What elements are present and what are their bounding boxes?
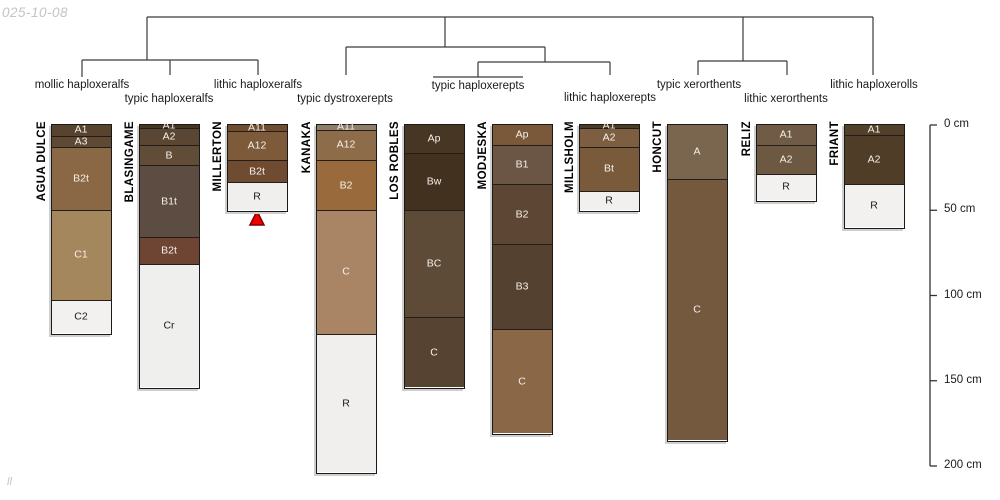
horizon-label: R	[317, 398, 376, 409]
soil-column-honcut: AC	[667, 124, 728, 442]
horizon-c1: C1	[52, 210, 111, 300]
axis-tick-label: 100 cm	[944, 289, 982, 301]
column-name-agua-dulce: AGUA DULCE	[36, 121, 48, 201]
horizon-r: R	[580, 191, 639, 210]
horizon-c: C	[668, 179, 727, 440]
axis-tick-label: 150 cm	[944, 374, 982, 386]
soil-column-friant: A1A2R	[844, 124, 905, 229]
horizon-label: A	[668, 146, 727, 157]
horizon-a12: A12	[228, 131, 287, 160]
horizon-b2: B2	[317, 160, 376, 209]
horizon-label: A1	[52, 125, 111, 136]
horizon-label: B2	[493, 209, 552, 220]
column-name-modjeska: MODJESKA	[477, 121, 489, 189]
horizon-label: B1	[493, 160, 552, 171]
subgroup-label-typic-xerorthents: typic xerorthents	[657, 79, 741, 91]
horizon-label: A1	[580, 121, 639, 132]
horizon-label: B	[140, 150, 199, 161]
watermark-bottom-left: ll	[7, 476, 12, 488]
horizon-label: B3	[493, 281, 552, 292]
horizon-label: A11	[228, 122, 287, 133]
horizon-label: C	[668, 304, 727, 315]
horizon-label: C	[317, 267, 376, 278]
horizon-label: A2	[845, 154, 904, 165]
subgroup-label-typic-haploxerepts: typic haploxerepts	[432, 80, 525, 92]
column-name-friant: FRIANT	[829, 121, 841, 166]
column-name-honcut: HONCUT	[652, 121, 664, 173]
red-triangle-marker	[250, 211, 264, 225]
horizon-label: R	[580, 195, 639, 206]
axis-tick-label: 0 cm	[944, 118, 969, 130]
horizon-r: R	[228, 182, 287, 209]
horizon-ap: Ap	[493, 125, 552, 145]
horizon-label: A2	[580, 132, 639, 143]
horizon-r: R	[757, 174, 816, 200]
soil-column-millerton: A11A12B2tR	[227, 124, 288, 212]
column-name-millsholm: MILLSHOLM	[564, 121, 576, 193]
subgroup-label-mollic-haploxeralfs: mollic haploxeralfs	[35, 79, 130, 91]
horizon-label: R	[757, 182, 816, 193]
horizon-bc: BC	[405, 210, 464, 317]
horizon-label: C2	[52, 311, 111, 322]
horizon-a1: A1	[580, 125, 639, 128]
horizon-label: A1	[757, 129, 816, 140]
horizon-cr: Cr	[140, 264, 199, 387]
horizon-b2t: B2t	[228, 160, 287, 182]
horizon-r: R	[317, 334, 376, 472]
axis-tick-label: 50 cm	[944, 203, 975, 215]
horizon-label: B1t	[140, 196, 199, 207]
horizon-b2t: B2t	[52, 147, 111, 210]
horizon-a3: A3	[52, 136, 111, 146]
horizon-label: A12	[228, 141, 287, 152]
horizon-label: A12	[317, 140, 376, 151]
subgroup-label-lithic-haploxeralfs: lithic haploxeralfs	[214, 79, 302, 91]
subgroup-label-typic-dystroxerepts: typic dystroxerepts	[297, 93, 393, 105]
horizon-label: B2t	[52, 173, 111, 184]
horizon-b2t: B2t	[140, 237, 199, 264]
horizon-label: B2t	[140, 246, 199, 257]
soil-column-los-robles: ApBwBCC	[404, 124, 465, 390]
horizon-a2: A2	[140, 128, 199, 145]
horizon-label: A2	[757, 154, 816, 165]
soil-column-kanaka: A11A12B2CR	[316, 124, 377, 475]
horizon-bt: Bt	[580, 147, 639, 191]
subgroup-label-lithic-haploxerolls: lithic haploxerolls	[830, 79, 918, 91]
subgroup-label-typic-haploxeralfs: typic haploxeralfs	[125, 93, 214, 105]
soil-column-millsholm: A1A2BtR	[579, 124, 640, 212]
soil-column-blasingame: A1A2BB1tB2tCr	[139, 124, 200, 390]
horizon-a2: A2	[757, 145, 816, 174]
column-name-reliz: RELIZ	[741, 121, 753, 156]
horizon-label: A3	[52, 137, 111, 148]
horizon-c: C	[405, 317, 464, 387]
horizon-label: Bw	[405, 177, 464, 188]
horizon-label: C	[493, 376, 552, 387]
horizon-label: R	[845, 200, 904, 211]
horizon-label: C1	[52, 250, 111, 261]
horizon-a11: A11	[317, 125, 376, 130]
subgroup-label-lithic-xerorthents: lithic xerorthents	[744, 93, 828, 105]
watermark-date: 025-10-08	[2, 5, 68, 20]
horizon-a2: A2	[845, 135, 904, 184]
horizon-a: A	[668, 125, 727, 180]
horizon-label: BC	[405, 258, 464, 269]
horizon-label: C	[405, 347, 464, 358]
horizon-label: Ap	[405, 133, 464, 144]
horizon-label: B2	[317, 180, 376, 191]
soil-column-modjeska: ApB1B2B3C	[492, 124, 553, 436]
soil-column-reliz: A1A2R	[756, 124, 817, 202]
column-name-blasingame: BLASINGAME	[124, 121, 136, 202]
horizon-c: C	[317, 210, 376, 334]
horizon-b2: B2	[493, 184, 552, 244]
horizon-a1: A1	[757, 125, 816, 145]
horizon-ap: Ap	[405, 125, 464, 154]
horizon-label: A1	[845, 124, 904, 135]
axis-tick-label: 200 cm	[944, 459, 982, 471]
horizon-c: C	[493, 329, 552, 433]
horizon-label: R	[228, 191, 287, 202]
horizon-label: Cr	[140, 321, 199, 332]
subgroup-label-lithic-haploxerepts: lithic haploxerepts	[564, 92, 656, 104]
soil-column-agua-dulce: A1A3B2tC1C2	[51, 124, 112, 335]
horizon-label: Ap	[493, 129, 552, 140]
column-name-los-robles: LOS ROBLES	[389, 121, 401, 200]
horizon-label: B2t	[228, 166, 287, 177]
horizon-b3: B3	[493, 244, 552, 329]
horizon-r: R	[845, 184, 904, 227]
horizon-label: Bt	[580, 164, 639, 175]
horizon-label: A2	[140, 131, 199, 142]
figure-canvas: 025-10-08 ll mollic haploxeralfstypic ha…	[0, 0, 1000, 500]
horizon-b1t: B1t	[140, 165, 199, 237]
column-name-millerton: MILLERTON	[212, 121, 224, 191]
column-name-kanaka: KANAKA	[301, 121, 313, 173]
horizon-a1: A1	[845, 125, 904, 135]
horizon-c2: C2	[52, 300, 111, 332]
horizon-b: B	[140, 145, 199, 165]
horizon-a11: A11	[228, 125, 287, 132]
horizon-a12: A12	[317, 130, 376, 161]
horizon-bw: Bw	[405, 153, 464, 209]
horizon-a1: A1	[140, 125, 199, 128]
horizon-label: A11	[317, 122, 376, 133]
horizon-b1: B1	[493, 145, 552, 184]
